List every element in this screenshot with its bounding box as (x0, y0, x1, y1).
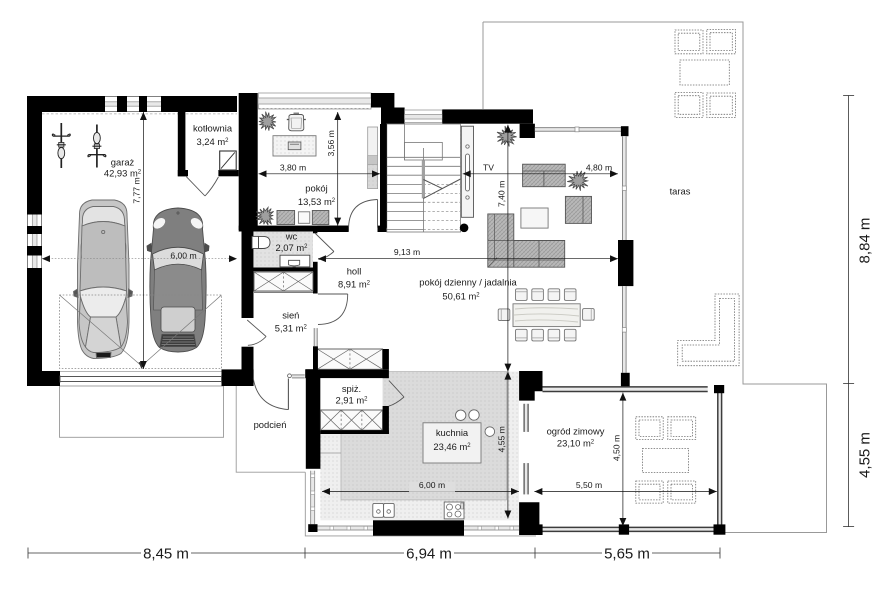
svg-text:pokój dzienny / jadalnia: pokój dzienny / jadalnia (419, 277, 517, 288)
svg-text:garaż: garaż (111, 157, 135, 168)
svg-text:6,00 m: 6,00 m (170, 250, 196, 260)
svg-text:4,50 m: 4,50 m (611, 435, 621, 461)
svg-text:8,84 m: 8,84 m (857, 218, 874, 264)
svg-text:taras: taras (670, 186, 691, 197)
svg-text:4,55 m: 4,55 m (857, 432, 874, 478)
svg-text:5,31 m2: 5,31 m2 (275, 323, 308, 334)
svg-text:3,80 m: 3,80 m (280, 162, 306, 172)
svg-text:sień: sień (282, 310, 299, 321)
svg-text:6,00 m: 6,00 m (419, 480, 445, 490)
svg-text:TV: TV (483, 162, 494, 172)
svg-text:7,77 m: 7,77 m (132, 177, 142, 203)
svg-text:6,94 m: 6,94 m (406, 546, 452, 563)
svg-text:4,55 m: 4,55 m (496, 426, 506, 452)
svg-text:4,80 m: 4,80 m (586, 162, 612, 172)
svg-text:7,40 m: 7,40 m (496, 181, 506, 207)
svg-text:3,24 m2: 3,24 m2 (196, 136, 229, 147)
svg-text:pokój: pokój (305, 183, 327, 194)
svg-text:2,07 m2: 2,07 m2 (275, 242, 308, 253)
svg-text:spiż.: spiż. (342, 383, 361, 394)
svg-text:50,61 m2: 50,61 m2 (442, 291, 480, 302)
svg-text:kuchnia: kuchnia (436, 427, 469, 438)
svg-text:23,46 m2: 23,46 m2 (433, 441, 471, 452)
svg-text:8,91 m2: 8,91 m2 (338, 279, 371, 290)
svg-text:5,50 m: 5,50 m (576, 480, 602, 490)
svg-text:5,65 m: 5,65 m (604, 546, 650, 563)
svg-text:ogród zimowy: ogród zimowy (547, 426, 605, 437)
svg-text:13,53 m2: 13,53 m2 (298, 196, 336, 207)
svg-text:9,13 m: 9,13 m (394, 247, 420, 257)
svg-text:3,56 m: 3,56 m (326, 130, 336, 156)
svg-text:holl: holl (347, 266, 362, 277)
svg-text:podcień: podcień (254, 419, 287, 430)
svg-text:wc: wc (285, 231, 298, 242)
svg-text:kotłownia: kotłownia (193, 123, 233, 134)
svg-text:42,93 m2: 42,93 m2 (104, 168, 142, 179)
svg-text:8,45 m: 8,45 m (143, 546, 189, 563)
svg-text:2,91 m2: 2,91 m2 (335, 395, 368, 406)
svg-text:23,10 m2: 23,10 m2 (557, 438, 595, 449)
